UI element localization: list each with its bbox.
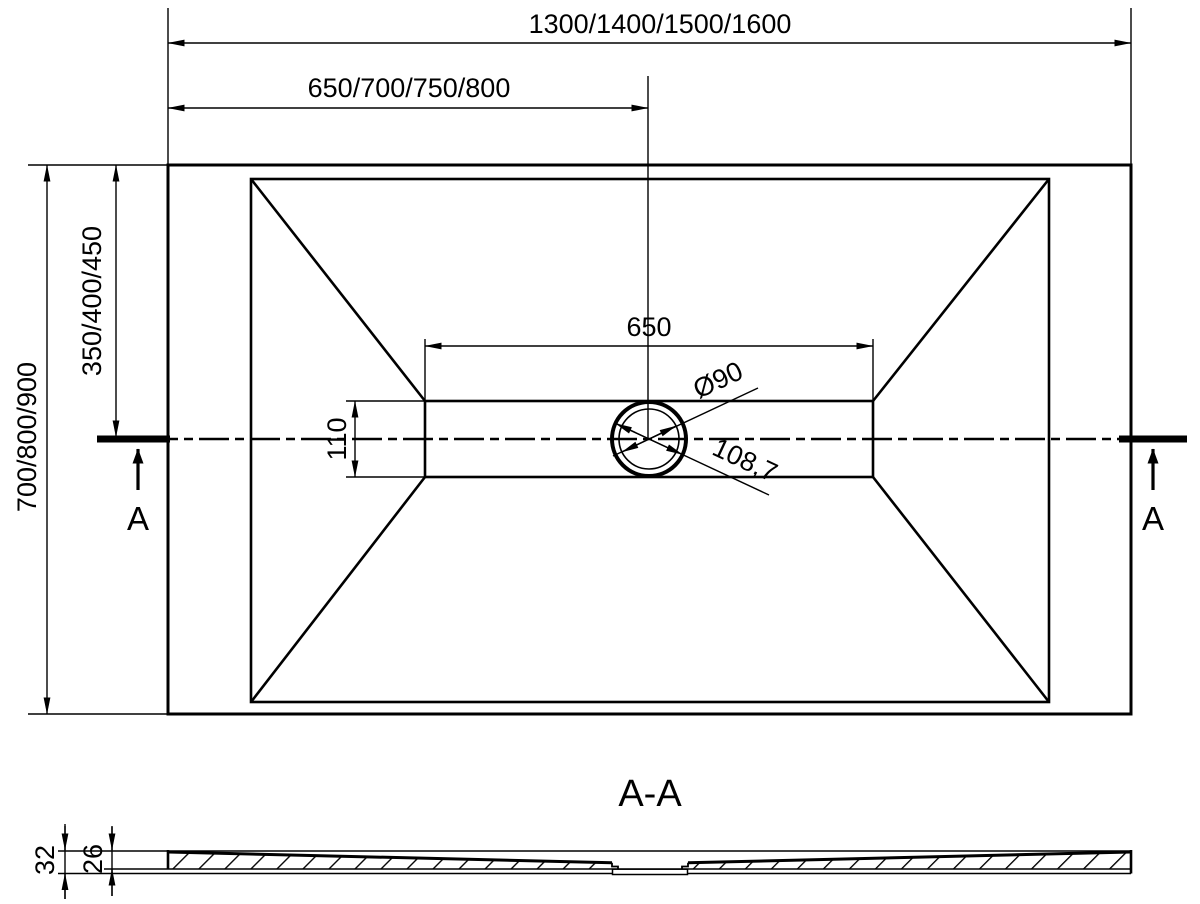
section-cut-left: A bbox=[97, 439, 170, 537]
shower-tray-technical-drawing: A A 1300/1400/1500/1600 650/700/750/800 … bbox=[0, 0, 1200, 904]
dim-core-thickness: 26 bbox=[78, 826, 112, 896]
section-view: A-A 32 26 bbox=[30, 773, 1131, 899]
section-title: A-A bbox=[618, 773, 682, 815]
dim-width-to-drain-label: 650/700/750/800 bbox=[308, 73, 511, 103]
dim-channel-width-label: 110 bbox=[322, 417, 352, 460]
section-cut-right: A bbox=[1119, 439, 1187, 537]
dim-flange-diameter: 108,7 bbox=[615, 423, 782, 495]
section-label-right: A bbox=[1142, 500, 1164, 537]
dim-width-to-drain: 650/700/750/800 bbox=[168, 73, 648, 108]
dim-depth-to-drain: 350/400/450 bbox=[77, 165, 116, 437]
slope-line-bottom-left bbox=[251, 477, 425, 702]
dim-channel-length-label: 650 bbox=[626, 312, 671, 342]
dim-overall-depth-label: 700/800/900 bbox=[12, 362, 42, 512]
slope-line-top-left bbox=[251, 179, 425, 401]
slope-line-top-right bbox=[873, 179, 1049, 401]
drain-recess-step-right bbox=[682, 863, 688, 869]
drawing-canvas: A A 1300/1400/1500/1600 650/700/750/800 … bbox=[0, 0, 1200, 904]
dim-channel-length: 650 bbox=[425, 312, 873, 401]
dim-edge-thickness-label: 32 bbox=[30, 845, 60, 875]
tray-inner-slope-edge bbox=[251, 179, 1049, 702]
dim-edge-thickness: 32 bbox=[30, 824, 65, 899]
plan-view: A A 1300/1400/1500/1600 650/700/750/800 … bbox=[12, 8, 1187, 714]
slope-line-bottom-right bbox=[873, 477, 1049, 702]
drain-body bbox=[613, 869, 688, 874]
dim-flange-diameter-label: 108,7 bbox=[708, 432, 782, 488]
drain-recess-step-left bbox=[612, 863, 618, 869]
dim-core-thickness-label: 26 bbox=[78, 844, 108, 874]
dim-depth-to-drain-label: 350/400/450 bbox=[77, 226, 107, 376]
section-label-left: A bbox=[127, 500, 149, 537]
dim-overall-width-label: 1300/1400/1500/1600 bbox=[529, 9, 792, 39]
